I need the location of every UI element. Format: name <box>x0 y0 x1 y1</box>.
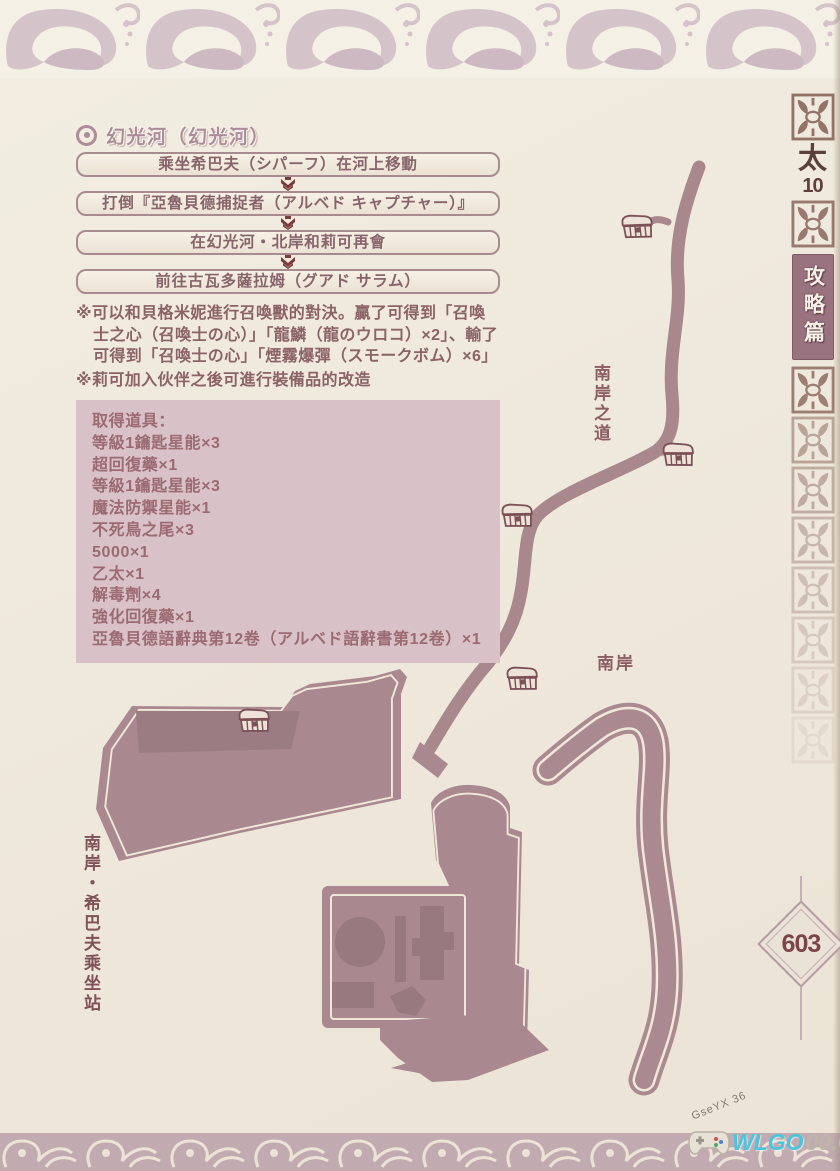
notes-block: ※可以和貝格米妮進行召喚獸的對決。贏了可得到「召喚士之心（召喚士の心）」「龍鱗（… <box>76 303 500 391</box>
watermark: WLGO00.COM <box>688 1128 840 1156</box>
station-plateau <box>96 669 448 861</box>
section-title-row: 幻光河（幻光河） <box>76 122 500 148</box>
sidebar: 太 10 攻略篇 <box>789 92 836 765</box>
ornament-tile-icon <box>791 93 835 141</box>
item-line: 等級1鑰匙星能×3 <box>92 476 486 498</box>
note-rikku-customize: ※莉可加入伙伴之後可進行裝備品的改造 <box>76 370 500 392</box>
ornament-tile-icon <box>791 366 835 414</box>
series-label: 太 10 <box>798 145 827 196</box>
obtained-items-box: 取得道具： 等級1鑰匙星能×3 超回復藥×1 等級1鑰匙星能×3 魔法防禦星能×… <box>76 400 500 663</box>
treasure-chest-icon <box>622 213 653 239</box>
item-line: 5000×1 <box>92 542 486 564</box>
walkthrough-flowchart: 乘坐希巴夫（シパーフ）在河上移動 打倒『亞魯貝德捕捉者（アルベド キャプチャー）… <box>76 152 500 294</box>
flow-step-2: 打倒『亞魯貝德捕捉者（アルベド キャプチャー）』 <box>76 191 500 216</box>
flow-step-4: 前往古瓦多薩拉姆（グアド サラム） <box>76 269 500 294</box>
section-tab-label: 攻略篇 <box>792 254 834 360</box>
treasure-chest-icon <box>663 442 694 467</box>
note-summon-duel: ※可以和貝格米妮進行召喚獸的對決。贏了可得到「召喚士之心（召喚士の心）」「龍鱗（… <box>76 303 500 368</box>
ornament-tile-icon <box>791 716 835 764</box>
map-label-south-bank: 南岸 <box>597 649 635 674</box>
ornament-tile-icon <box>791 666 835 714</box>
page-title: 幻光河（幻光河） <box>106 122 270 149</box>
guide-page: 幻光河（幻光河） 乘坐希巴夫（シパーフ）在河上移動 打倒『亞魯貝德捕捉者（アルベ… <box>0 0 840 1171</box>
ornament-tile-icon <box>791 516 835 564</box>
flow-arrow-icon <box>76 177 500 191</box>
map-label-south-station: 南岸・希巴夫乘坐站 <box>78 834 103 1014</box>
ornament-tile-icon <box>791 616 835 664</box>
map-label-south-road: 南岸之道 <box>588 364 613 444</box>
walkthrough-content: 幻光河（幻光河） 乘坐希巴夫（シパーフ）在河上移動 打倒『亞魯貝德捕捉者（アルベ… <box>76 122 500 663</box>
items-box-title: 取得道具： <box>92 411 486 433</box>
item-line: 亞魯貝德語辭典第12卷（アルベド語辭書第12卷）×1 <box>92 629 486 651</box>
section-bullet-icon <box>76 125 97 146</box>
flow-arrow-icon <box>76 255 500 269</box>
flow-step-3: 在幻光河・北岸和莉可再會 <box>76 230 500 255</box>
gamepad-icon <box>688 1128 730 1156</box>
treasure-chest-icon <box>502 503 533 528</box>
ornament-tile-icon <box>791 416 835 464</box>
ornament-tile-icon <box>791 200 835 248</box>
watermark-brand-highlight: WLGO <box>732 1129 804 1156</box>
treasure-chest-icon <box>239 708 270 733</box>
ornament-tile-icon <box>791 566 835 614</box>
item-line: 超回復藥×1 <box>92 455 486 477</box>
ornament-tile-icon <box>791 466 835 514</box>
ornamental-border-top <box>0 0 840 78</box>
item-line: 乙太×1 <box>92 564 486 586</box>
flow-arrow-icon <box>76 216 500 230</box>
flow-step-1: 乘坐希巴夫（シパーフ）在河上移動 <box>76 152 500 177</box>
watermark-brand-rest: 00.COM <box>806 1129 840 1156</box>
item-line: 魔法防禦星能×1 <box>92 498 486 520</box>
river-path-hook <box>548 718 667 1080</box>
item-line: 強化回復藥×1 <box>92 607 486 629</box>
series-character: 太 <box>798 145 827 174</box>
treasure-chest-icon <box>507 666 538 691</box>
item-line: 不死鳥之尾×3 <box>92 520 486 542</box>
item-line: 等級1鑰匙星能×3 <box>92 433 486 455</box>
series-number: 10 <box>798 176 827 196</box>
page-number: 603 <box>782 930 821 959</box>
item-line: 解毒劑×4 <box>92 585 486 607</box>
